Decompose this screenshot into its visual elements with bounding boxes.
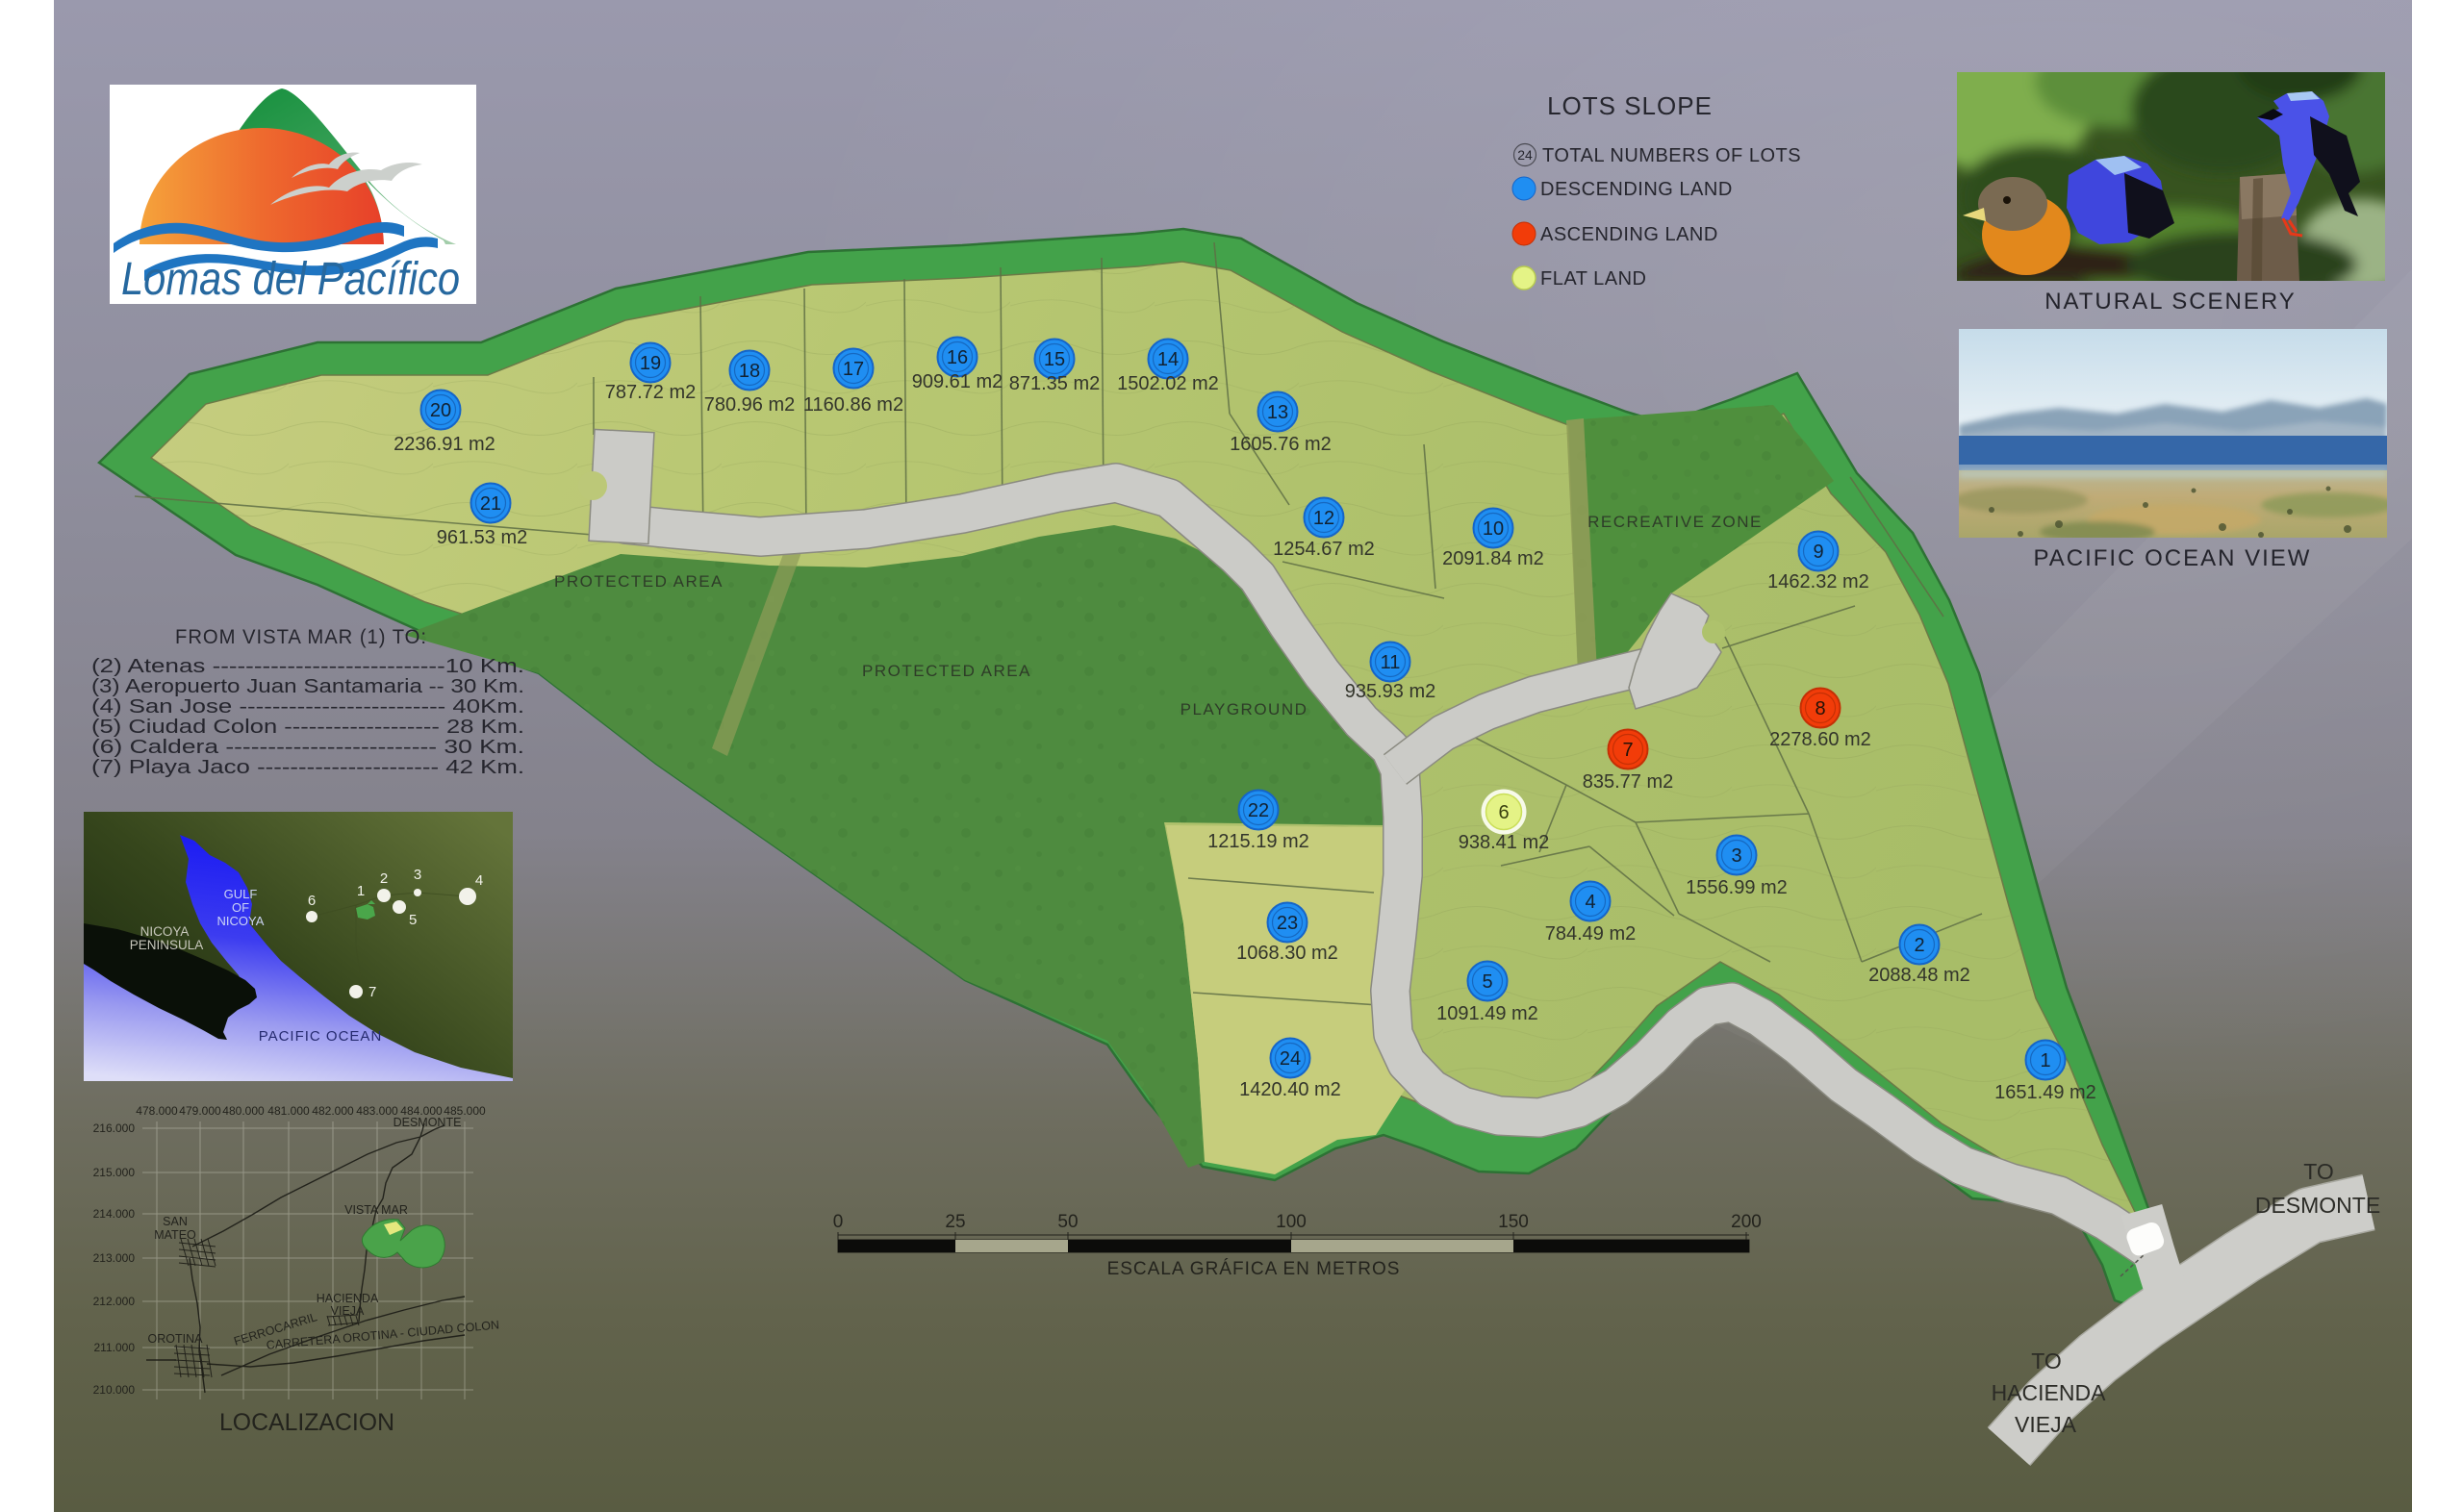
svg-text:7: 7 — [368, 984, 376, 1000]
svg-text:ESCALA GRÁFICA EN METROS: ESCALA GRÁFICA EN METROS — [1107, 1259, 1401, 1279]
svg-text:481.000: 481.000 — [267, 1104, 310, 1118]
svg-text:FLAT LAND: FLAT LAND — [1540, 268, 1646, 290]
svg-text:2278.60 m2: 2278.60 m2 — [1769, 729, 1871, 750]
svg-text:961.53 m2: 961.53 m2 — [437, 527, 528, 548]
svg-text:1651.49 m2: 1651.49 m2 — [1994, 1082, 2096, 1103]
svg-text:(5) Ciudad Colon -------------: (5) Ciudad Colon ------------------- 28 … — [91, 716, 524, 738]
svg-text:780.96 m2: 780.96 m2 — [704, 394, 796, 416]
svg-text:VISTA MAR: VISTA MAR — [344, 1203, 408, 1217]
svg-text:100: 100 — [1276, 1212, 1307, 1232]
svg-text:(2) Atenas -------------------: (2) Atenas ----------------------------1… — [91, 655, 524, 677]
svg-text:(4) San Jose -----------------: (4) San Jose ------------------------- 4… — [91, 695, 524, 718]
svg-text:5: 5 — [409, 912, 417, 928]
svg-text:ASCENDING LAND: ASCENDING LAND — [1540, 224, 1718, 245]
svg-text:7: 7 — [1622, 740, 1633, 761]
svg-text:935.93 m2: 935.93 m2 — [1345, 681, 1436, 702]
svg-text:483.000: 483.000 — [356, 1104, 398, 1118]
svg-text:16: 16 — [947, 347, 968, 368]
svg-text:8: 8 — [1815, 698, 1825, 719]
svg-text:1068.30 m2: 1068.30 m2 — [1236, 943, 1338, 964]
svg-text:1254.67 m2: 1254.67 m2 — [1273, 539, 1375, 560]
svg-text:211.000: 211.000 — [94, 1341, 136, 1354]
svg-text:784.49 m2: 784.49 m2 — [1545, 923, 1637, 945]
svg-text:6: 6 — [1498, 802, 1509, 823]
svg-text:13: 13 — [1267, 402, 1288, 423]
svg-text:VIEJA: VIEJA — [2015, 1412, 2077, 1437]
svg-text:NICOYA: NICOYA — [217, 914, 265, 928]
svg-text:1605.76 m2: 1605.76 m2 — [1230, 434, 1332, 455]
svg-text:25: 25 — [945, 1212, 965, 1232]
svg-text:15: 15 — [1044, 349, 1065, 370]
svg-text:212.000: 212.000 — [93, 1295, 136, 1308]
svg-text:OF: OF — [232, 900, 249, 915]
svg-text:LOTS SLOPE: LOTS SLOPE — [1547, 91, 1713, 120]
svg-text:1462.32 m2: 1462.32 m2 — [1767, 571, 1869, 592]
svg-text:PACIFIC OCEAN VIEW: PACIFIC OCEAN VIEW — [2034, 545, 2312, 571]
svg-text:19: 19 — [640, 353, 661, 374]
svg-text:4: 4 — [1585, 892, 1595, 913]
svg-text:479.000: 479.000 — [179, 1104, 221, 1118]
svg-text:909.61 m2: 909.61 m2 — [912, 371, 1003, 392]
svg-text:938.41 m2: 938.41 m2 — [1459, 832, 1550, 853]
svg-text:478.000: 478.000 — [136, 1104, 178, 1118]
svg-text:18: 18 — [739, 361, 760, 382]
svg-text:1556.99 m2: 1556.99 m2 — [1686, 877, 1788, 898]
svg-text:3: 3 — [1731, 845, 1741, 867]
svg-text:14: 14 — [1157, 349, 1179, 370]
svg-text:17: 17 — [843, 359, 864, 380]
svg-text:GULF: GULF — [224, 887, 258, 901]
svg-text:6: 6 — [308, 893, 316, 909]
svg-text:RECREATIVE ZONE: RECREATIVE ZONE — [1587, 513, 1763, 531]
svg-text:TOTAL NUMBERS OF LOTS: TOTAL NUMBERS OF LOTS — [1542, 145, 1801, 166]
svg-text:LOCALIZACION: LOCALIZACION — [219, 1409, 394, 1436]
svg-text:DESMONTE: DESMONTE — [2255, 1193, 2380, 1218]
svg-text:PROTECTED AREA: PROTECTED AREA — [862, 662, 1031, 680]
svg-text:21: 21 — [480, 493, 501, 515]
svg-text:4: 4 — [475, 872, 483, 889]
svg-text:214.000: 214.000 — [93, 1207, 136, 1221]
svg-text:DESCENDING LAND: DESCENDING LAND — [1540, 179, 1733, 200]
svg-text:PENINSULA: PENINSULA — [130, 938, 204, 952]
svg-text:216.000: 216.000 — [93, 1121, 136, 1135]
svg-text:24: 24 — [1280, 1048, 1301, 1070]
svg-text:VIEJA: VIEJA — [331, 1304, 365, 1318]
svg-text:1: 1 — [2040, 1050, 2050, 1071]
svg-text:NATURAL SCENERY: NATURAL SCENERY — [2044, 289, 2297, 315]
svg-text:PLAYGROUND: PLAYGROUND — [1181, 700, 1308, 718]
svg-text:HACIENDA: HACIENDA — [1992, 1380, 2107, 1405]
svg-text:210.000: 210.000 — [93, 1383, 136, 1397]
svg-text:787.72 m2: 787.72 m2 — [605, 382, 697, 403]
svg-text:0: 0 — [833, 1212, 844, 1232]
svg-text:1420.40 m2: 1420.40 m2 — [1239, 1079, 1341, 1100]
svg-text:TO: TO — [2031, 1348, 2062, 1373]
svg-text:22: 22 — [1248, 800, 1269, 821]
svg-text:2: 2 — [1914, 935, 1924, 956]
svg-text:2: 2 — [380, 870, 388, 887]
svg-text:PROTECTED AREA: PROTECTED AREA — [554, 572, 724, 591]
svg-text:20: 20 — [430, 400, 451, 421]
svg-text:1502.02 m2: 1502.02 m2 — [1117, 373, 1219, 394]
svg-text:SAN: SAN — [163, 1215, 188, 1228]
svg-text:2088.48 m2: 2088.48 m2 — [1868, 965, 1970, 986]
svg-text:MATEO: MATEO — [154, 1228, 196, 1242]
svg-text:1: 1 — [357, 883, 365, 899]
svg-text:835.77 m2: 835.77 m2 — [1583, 771, 1674, 793]
svg-text:OROTINA: OROTINA — [148, 1332, 204, 1346]
svg-text:12: 12 — [1313, 508, 1334, 529]
svg-text:215.000: 215.000 — [93, 1166, 136, 1179]
svg-text:480.000: 480.000 — [222, 1104, 265, 1118]
svg-text:1215.19 m2: 1215.19 m2 — [1207, 831, 1309, 852]
svg-text:9: 9 — [1813, 542, 1823, 563]
svg-text:(3) Aeropuerto Juan Santamaria: (3) Aeropuerto Juan Santamaria -- 30 Km. — [91, 675, 524, 697]
svg-text:TO: TO — [2303, 1159, 2334, 1184]
svg-text:DESMONTE: DESMONTE — [394, 1116, 462, 1129]
svg-text:NICOYA: NICOYA — [140, 924, 190, 939]
svg-text:10: 10 — [1483, 518, 1504, 540]
svg-text:11: 11 — [1381, 652, 1401, 673]
svg-text:482.000: 482.000 — [312, 1104, 354, 1118]
svg-text:200: 200 — [1731, 1212, 1762, 1232]
svg-text:Lomas del Pacífico: Lomas del Pacífico — [121, 254, 460, 305]
svg-text:871.35 m2: 871.35 m2 — [1009, 373, 1101, 394]
svg-text:1091.49 m2: 1091.49 m2 — [1436, 1003, 1538, 1024]
svg-text:2091.84 m2: 2091.84 m2 — [1442, 548, 1544, 569]
svg-text:50: 50 — [1057, 1212, 1078, 1232]
svg-text:(7) Playa Jaco ---------------: (7) Playa Jaco ---------------------- 42… — [91, 756, 524, 778]
svg-text:5: 5 — [1482, 971, 1492, 993]
svg-text:23: 23 — [1277, 913, 1298, 934]
svg-text:(6) Caldera ------------------: (6) Caldera ------------------------- 30… — [91, 736, 524, 758]
svg-text:1160.86 m2: 1160.86 m2 — [803, 394, 903, 416]
svg-text:PACIFIC OCEAN: PACIFIC OCEAN — [259, 1028, 383, 1045]
svg-text:FROM VISTA MAR (1) TO:: FROM VISTA MAR (1) TO: — [175, 626, 427, 648]
svg-text:3: 3 — [414, 867, 421, 883]
svg-text:2236.91 m2: 2236.91 m2 — [394, 434, 495, 455]
svg-text:24: 24 — [1517, 147, 1533, 163]
svg-text:213.000: 213.000 — [93, 1251, 136, 1265]
svg-text:HACIENDA: HACIENDA — [317, 1292, 379, 1305]
svg-text:150: 150 — [1498, 1212, 1529, 1232]
